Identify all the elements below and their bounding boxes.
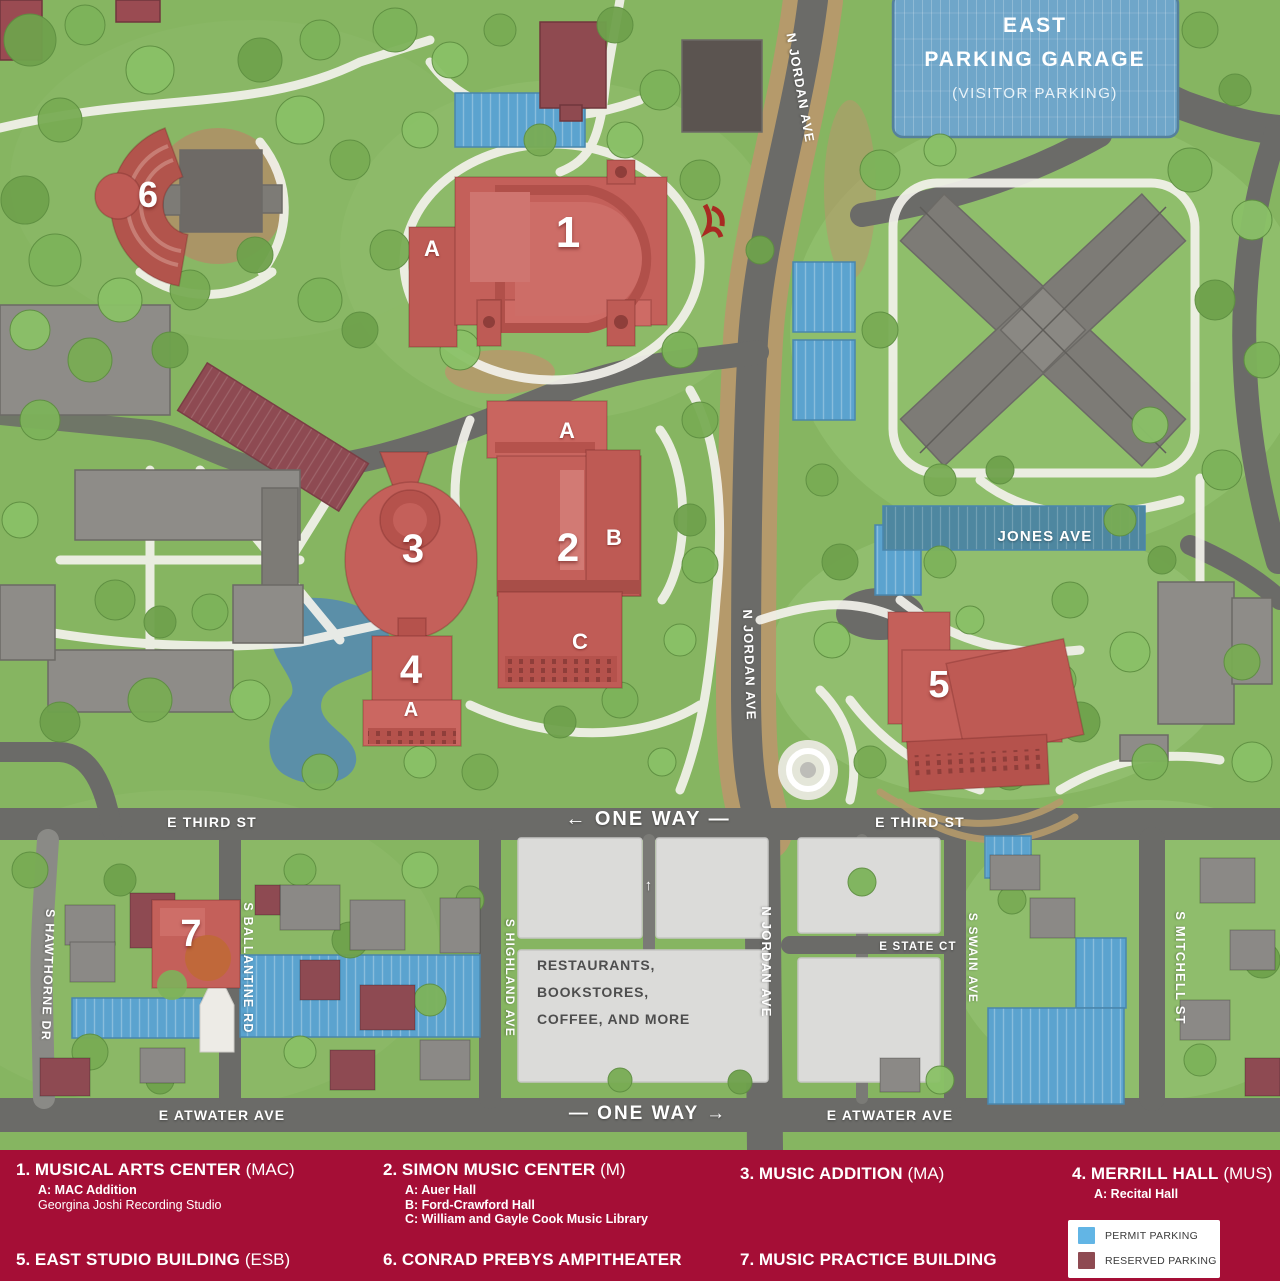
legend-entry-1: 1. MUSICAL ARTS CENTER (MAC) A: MAC Addi… — [16, 1160, 295, 1212]
one-way-west: ← ONE WAY — — [565, 808, 730, 830]
legend-name: CONRAD PREBYS AMPITHEATER — [402, 1250, 682, 1269]
street-e-atwater-left: E ATWATER AVE — [159, 1107, 286, 1123]
street-s-mitchell: S MITCHELL ST — [1173, 911, 1188, 1025]
legend-abbr: (MUS) — [1223, 1164, 1272, 1183]
reserved-parking-label: RESERVED PARKING — [1105, 1255, 1217, 1267]
street-e-third-left: E THIRD ST — [167, 814, 257, 830]
marker-4: 4 — [400, 648, 423, 692]
street-n-jordan-bottom: N JORDAN AVE — [759, 906, 774, 1017]
legend-sub: A: Recital Hall — [1094, 1187, 1272, 1202]
marker-2c: C — [572, 629, 588, 654]
marker-4a: A — [404, 699, 418, 721]
legend-num: 2. — [383, 1160, 397, 1179]
map-legend: 1. MUSICAL ARTS CENTER (MAC) A: MAC Addi… — [0, 1150, 1280, 1281]
legend-sub: A: Auer Hall — [405, 1183, 648, 1198]
street-s-swain: S SWAIN AVE — [966, 913, 980, 1004]
legend-entry-5: 5. EAST STUDIO BUILDING (ESB) — [16, 1250, 290, 1270]
street-e-atwater-right: E ATWATER AVE — [827, 1107, 954, 1123]
permit-parking-label: PERMIT PARKING — [1105, 1230, 1198, 1242]
legend-abbr: (ESB) — [245, 1250, 290, 1269]
marker-3: 3 — [402, 527, 424, 571]
street-jones-ave: JONES AVE — [998, 528, 1093, 545]
street-e-third-right: E THIRD ST — [875, 814, 965, 830]
legend-num: 4. — [1072, 1164, 1086, 1183]
street-s-highland: S HIGHLAND AVE — [503, 919, 517, 1037]
legend-name: MUSIC ADDITION — [759, 1164, 903, 1183]
campus-map: EAST PARKING GARAGE (VISITOR PARKING) — [0, 0, 1280, 1150]
map-area: EAST PARKING GARAGE (VISITOR PARKING) — [0, 0, 1280, 1150]
legend-name: MERRILL HALL — [1091, 1164, 1219, 1183]
legend-sub: B: Ford-Crawford Hall — [405, 1198, 648, 1213]
parking-key: PERMIT PARKING RESERVED PARKING — [1068, 1220, 1220, 1278]
marker-7: 7 — [180, 913, 201, 955]
legend-name: EAST STUDIO BUILDING — [35, 1250, 240, 1269]
legend-abbr: (M) — [600, 1160, 625, 1179]
legend-entry-7: 7. MUSIC PRACTICE BUILDING — [740, 1250, 997, 1270]
legend-name: MUSIC PRACTICE BUILDING — [759, 1250, 997, 1269]
legend-entry-2: 2. SIMON MUSIC CENTER (M) A: Auer Hall B… — [383, 1160, 648, 1227]
legend-name: MUSICAL ARTS CENTER — [35, 1160, 241, 1179]
reserved-parking-swatch — [1078, 1252, 1095, 1269]
lot-direction-arrow: ↑ — [645, 877, 654, 894]
district-label-line1: RESTAURANTS, — [537, 957, 655, 973]
legend-num: 6. — [383, 1250, 397, 1269]
district-label-line2: BOOKSTORES, — [537, 984, 649, 1000]
legend-abbr: (MA) — [908, 1164, 945, 1183]
garage-label-line1: EAST — [1003, 14, 1067, 37]
marker-2b: B — [606, 525, 622, 550]
garage-label-line2: PARKING GARAGE — [924, 48, 1145, 71]
marker-5: 5 — [928, 664, 949, 706]
garage-label-line3: (VISITOR PARKING) — [952, 85, 1118, 102]
legend-name: SIMON MUSIC CENTER — [402, 1160, 595, 1179]
district-label-line3: COFFEE, AND MORE — [537, 1011, 690, 1027]
marker-1: 1 — [556, 208, 580, 257]
legend-sub: Georgina Joshi Recording Studio — [38, 1198, 295, 1213]
legend-sub: C: William and Gayle Cook Music Library — [405, 1212, 648, 1227]
legend-num: 3. — [740, 1164, 754, 1183]
marker-2a: A — [559, 418, 575, 443]
legend-sub: A: MAC Addition — [38, 1183, 295, 1198]
street-e-state-ct: E STATE CT — [879, 941, 956, 953]
legend-entry-4: 4. MERRILL HALL (MUS) A: Recital Hall — [1072, 1164, 1272, 1202]
east-parking-garage: EAST PARKING GARAGE (VISITOR PARKING) — [893, 0, 1178, 137]
legend-entry-6: 6. CONRAD PREBYS AMPITHEATER — [383, 1250, 682, 1270]
permit-parking-swatch — [1078, 1227, 1095, 1244]
marker-2: 2 — [557, 526, 579, 570]
campus-map-page: EAST PARKING GARAGE (VISITOR PARKING) — [0, 0, 1280, 1281]
legend-num: 7. — [740, 1250, 754, 1269]
marker-1a: A — [424, 236, 440, 261]
legend-num: 5. — [16, 1250, 30, 1269]
street-s-ballantine: S BALLANTINE RD — [241, 902, 255, 1033]
legend-entry-3: 3. MUSIC ADDITION (MA) — [740, 1164, 944, 1184]
legend-abbr: (MAC) — [246, 1160, 295, 1179]
one-way-east: — ONE WAY → — [569, 1103, 727, 1124]
legend-num: 1. — [16, 1160, 30, 1179]
marker-6: 6 — [138, 174, 158, 215]
